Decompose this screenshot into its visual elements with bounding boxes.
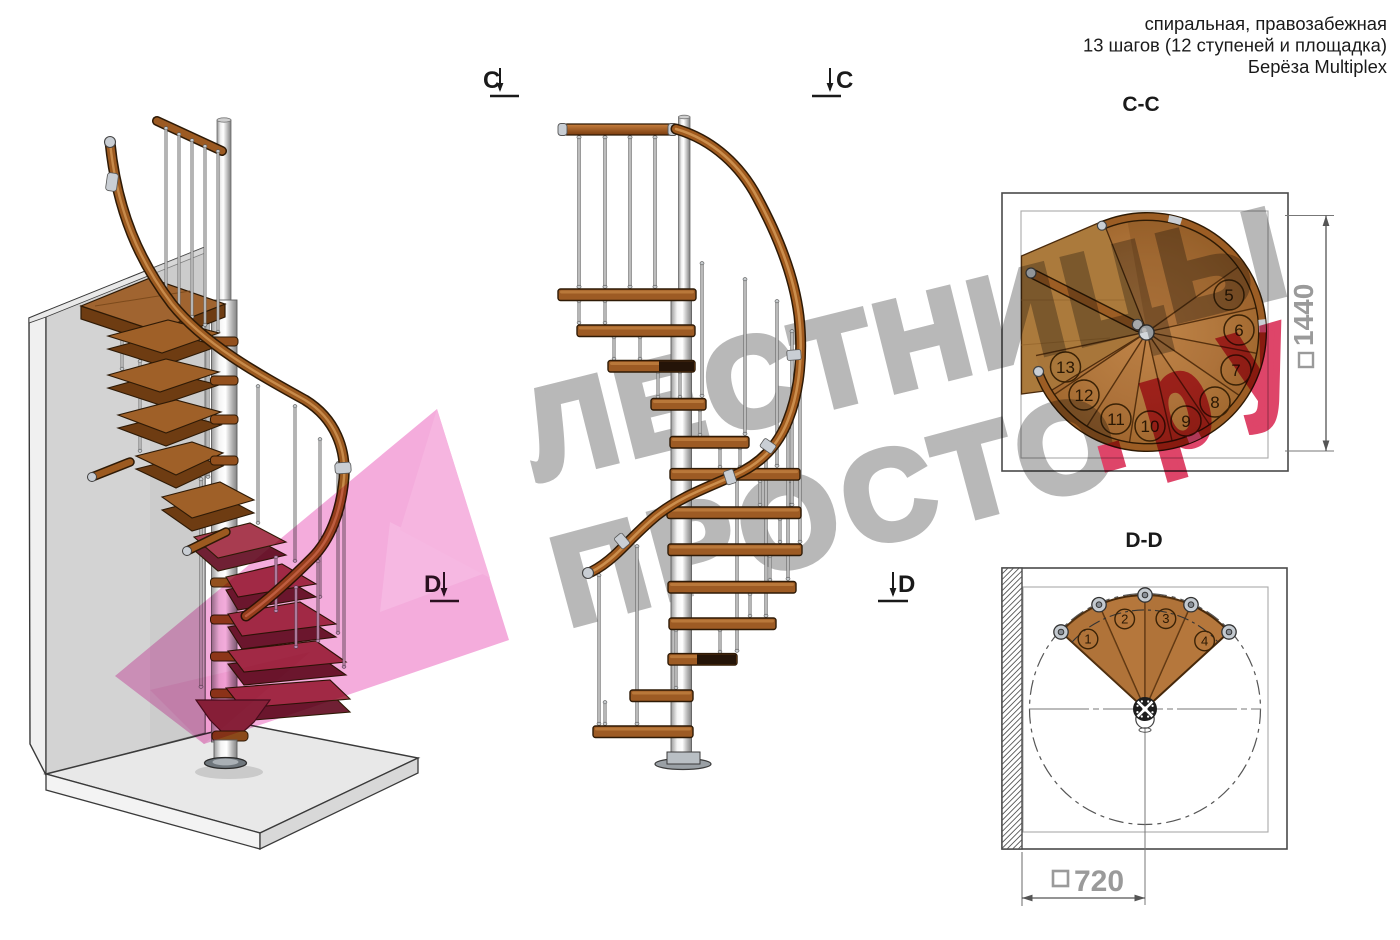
svg-text:4: 4 [1201,634,1208,649]
svg-text:C: C [836,67,853,94]
svg-text:3: 3 [1162,611,1169,626]
svg-text:2: 2 [1121,612,1128,627]
svg-text:720: 720 [1074,865,1124,898]
svg-text:13 шагов (12 ступеней и площад: 13 шагов (12 ступеней и площадка) [1083,35,1387,56]
svg-text:1: 1 [1084,632,1091,647]
svg-text:Берёза Multiplex: Берёза Multiplex [1248,56,1387,77]
svg-text:спиральная, правозабежная: спиральная, правозабежная [1145,13,1387,34]
svg-text:C-C: C-C [1122,93,1159,116]
svg-text:D-D: D-D [1125,529,1162,552]
svg-text:D: D [424,571,441,598]
svg-text:C: C [483,67,500,94]
svg-text:D: D [898,571,915,598]
